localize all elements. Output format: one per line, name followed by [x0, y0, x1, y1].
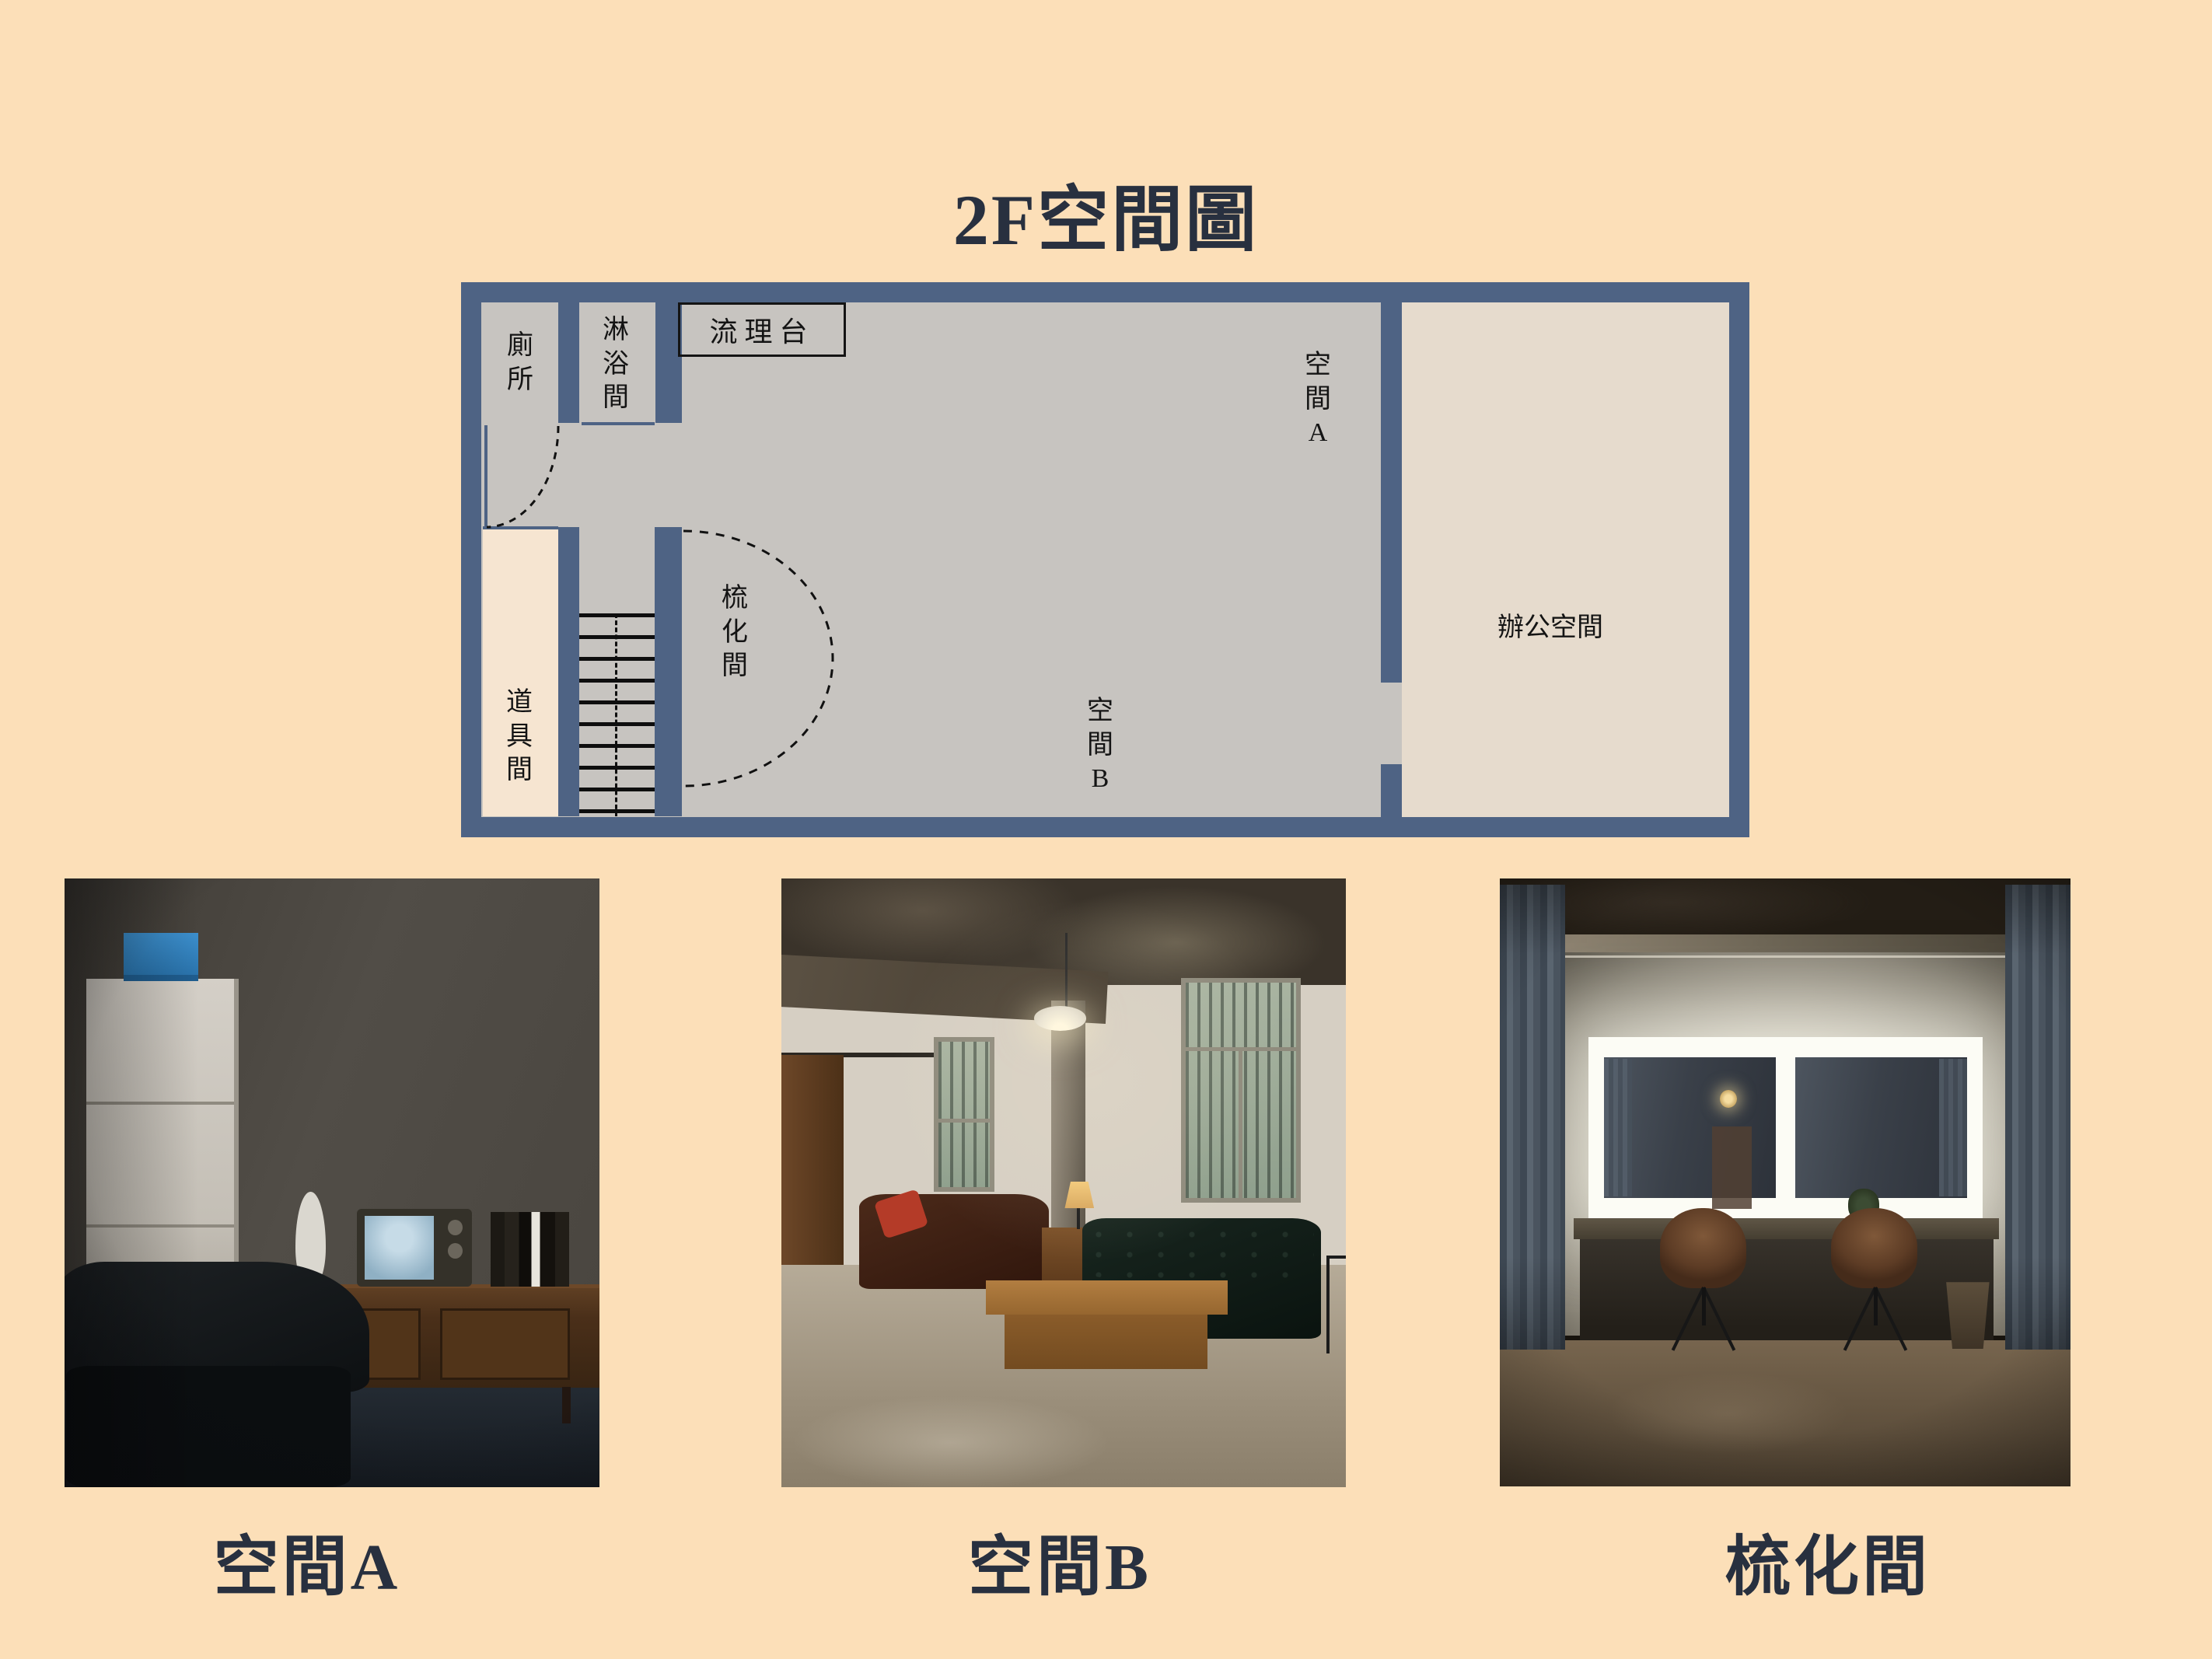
label-toilet: 廁所: [504, 329, 536, 396]
console-leg: [562, 1387, 571, 1423]
cabinet-seam: [86, 1102, 234, 1105]
ceiling-beam: [1551, 934, 2019, 952]
lighted-makeup-mirror: [1588, 1037, 1983, 1218]
chair-legs: [1669, 1287, 1737, 1357]
makeup-counter-top: [1574, 1218, 1999, 1239]
makeup-counter-front: [1580, 1239, 1994, 1343]
chair-post: [1874, 1287, 1878, 1325]
label-props-room: 道具間: [503, 686, 536, 788]
sink-counter-box: 流理台: [678, 302, 846, 357]
chair-leg: [1703, 1287, 1736, 1351]
pendant-cord: [1065, 933, 1068, 1012]
wall-office-lower: [1381, 764, 1402, 817]
tv-knob: [448, 1220, 463, 1235]
chair-leg: [1672, 1287, 1705, 1351]
chair-legs: [1840, 1287, 1908, 1357]
chair-leg: [1843, 1287, 1876, 1351]
window-bar: [1239, 1047, 1242, 1197]
reflected-curtain: [1939, 1059, 1967, 1196]
console-door: [440, 1308, 570, 1380]
page-title: 2F空間圖: [0, 162, 2212, 265]
photo-makeup-room: [1500, 878, 2070, 1486]
chair-leg: [1874, 1287, 1907, 1351]
label-makeup-room: 梳化間: [718, 582, 751, 683]
pendant-lamp: [1034, 1006, 1086, 1030]
curtain-right: [2005, 885, 2070, 1350]
toilet-door-swing-arc: [486, 425, 560, 528]
armchair-seat: [66, 1366, 350, 1487]
caption-makeup-room: 梳化間: [1725, 1514, 1931, 1608]
window-left: [934, 1037, 994, 1193]
sliding-barn-door: [781, 1055, 844, 1277]
label-office: 辦公空間: [1480, 606, 1620, 644]
floor-guide-poster: 2F空間圖 流理台 廁所 淋浴間 梳化間 道具間 空間A 空間B 辦公空間: [0, 0, 2212, 1659]
tv-static-screen: [365, 1216, 434, 1280]
leather-armchair: [65, 1262, 369, 1487]
wall-toilet-right: [558, 302, 579, 423]
stairs-center-dashed-line: [615, 613, 617, 816]
chair-post: [1702, 1287, 1706, 1325]
cable-line: [1563, 955, 2008, 958]
table-lamp-stem: [1077, 1207, 1080, 1229]
metal-rack: [1326, 1256, 1346, 1353]
reflected-lamp: [1720, 1090, 1737, 1108]
wall-stairs-right: [655, 527, 682, 816]
label-shower: 淋浴間: [599, 313, 632, 415]
dark-ceiling: [1500, 878, 2070, 939]
tufted-backrest: [1089, 1225, 1314, 1278]
coffee-table-base: [1005, 1315, 1207, 1369]
wall-stairs-left: [558, 527, 579, 816]
sink-counter-label: 流理台: [709, 309, 814, 350]
tv-knob: [448, 1243, 463, 1259]
makeup-door-swing-arc: [682, 530, 833, 787]
blue-storage-box: [124, 933, 198, 980]
room-office: [1402, 302, 1729, 817]
concrete-floor: [1500, 1340, 2070, 1486]
floor-plan: 流理台 廁所 淋浴間 梳化間 道具間 空間A 空間B 辦公空間: [461, 282, 1749, 837]
label-space-b: 空間B: [1084, 694, 1116, 796]
swivel-chair-right: [1831, 1208, 1918, 1288]
shower-door-line: [582, 422, 655, 425]
reflected-curtain: [1604, 1059, 1632, 1196]
cabinet-seam: [86, 1224, 234, 1228]
label-space-a: 空間A: [1302, 348, 1334, 450]
caption-space-a: 空間A: [214, 1514, 401, 1608]
caption-space-b: 空間B: [968, 1514, 1151, 1608]
curtain-left: [1500, 885, 1565, 1350]
swivel-chair-left: [1660, 1208, 1747, 1288]
window-bar: [938, 1119, 990, 1123]
vintage-tv: [357, 1209, 473, 1287]
coffee-table-top: [986, 1280, 1228, 1315]
reflected-door: [1712, 1126, 1752, 1209]
book-stack: [491, 1212, 570, 1287]
wall-office-upper: [1381, 302, 1402, 683]
window-right: [1181, 978, 1301, 1202]
photo-space-a: [65, 878, 599, 1487]
photo-space-b: [781, 878, 1346, 1487]
